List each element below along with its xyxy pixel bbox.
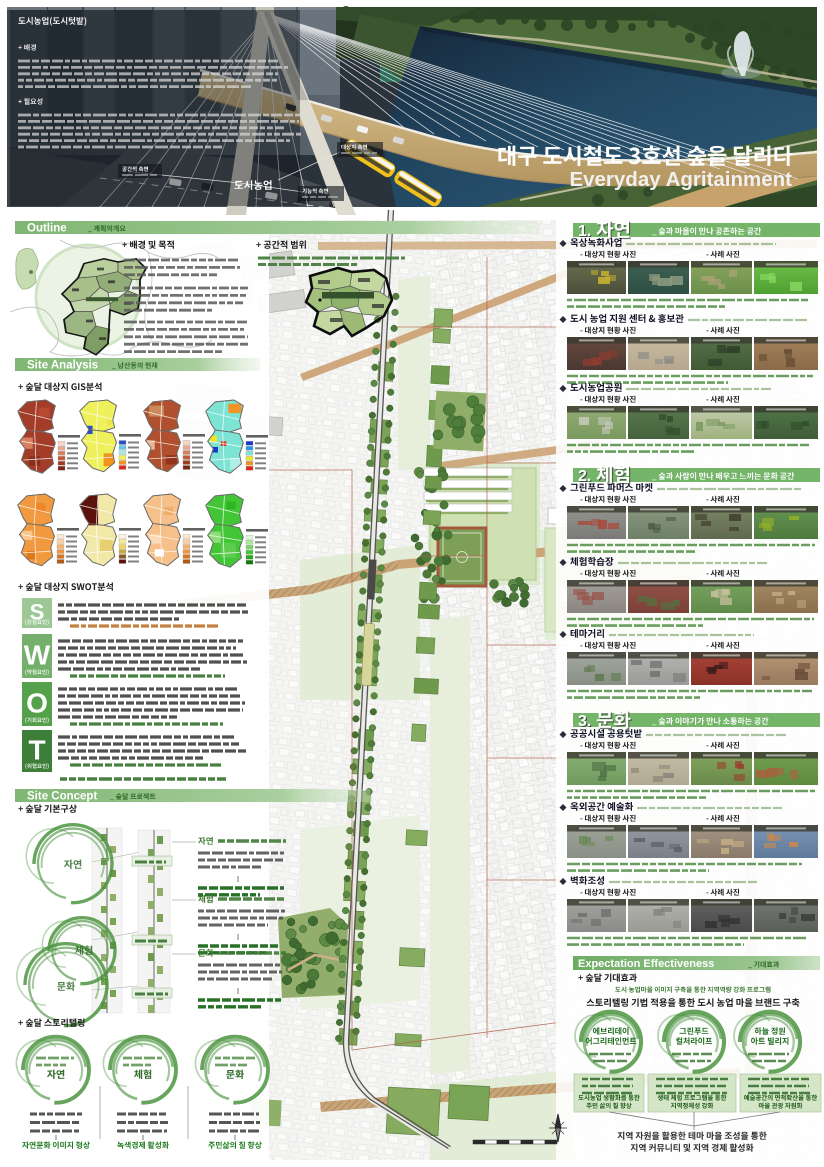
svg-text:Expectation Effectiveness: Expectation Effectiveness bbox=[578, 958, 714, 970]
svg-text:T: T bbox=[28, 734, 45, 765]
svg-text:2.: 2. bbox=[578, 468, 591, 485]
svg-text:Outline: Outline bbox=[27, 223, 67, 235]
svg-text:Site Analysis: Site Analysis bbox=[27, 360, 98, 372]
svg-text:S: S bbox=[30, 600, 45, 625]
svg-text:Everyday Agritainment: Everyday Agritainment bbox=[569, 168, 792, 191]
svg-text:O: O bbox=[26, 687, 48, 718]
svg-text:Site Concept: Site Concept bbox=[27, 791, 97, 803]
svg-text:W: W bbox=[24, 639, 51, 670]
svg-text:1.: 1. bbox=[578, 223, 591, 240]
svg-text:3.: 3. bbox=[578, 713, 591, 730]
